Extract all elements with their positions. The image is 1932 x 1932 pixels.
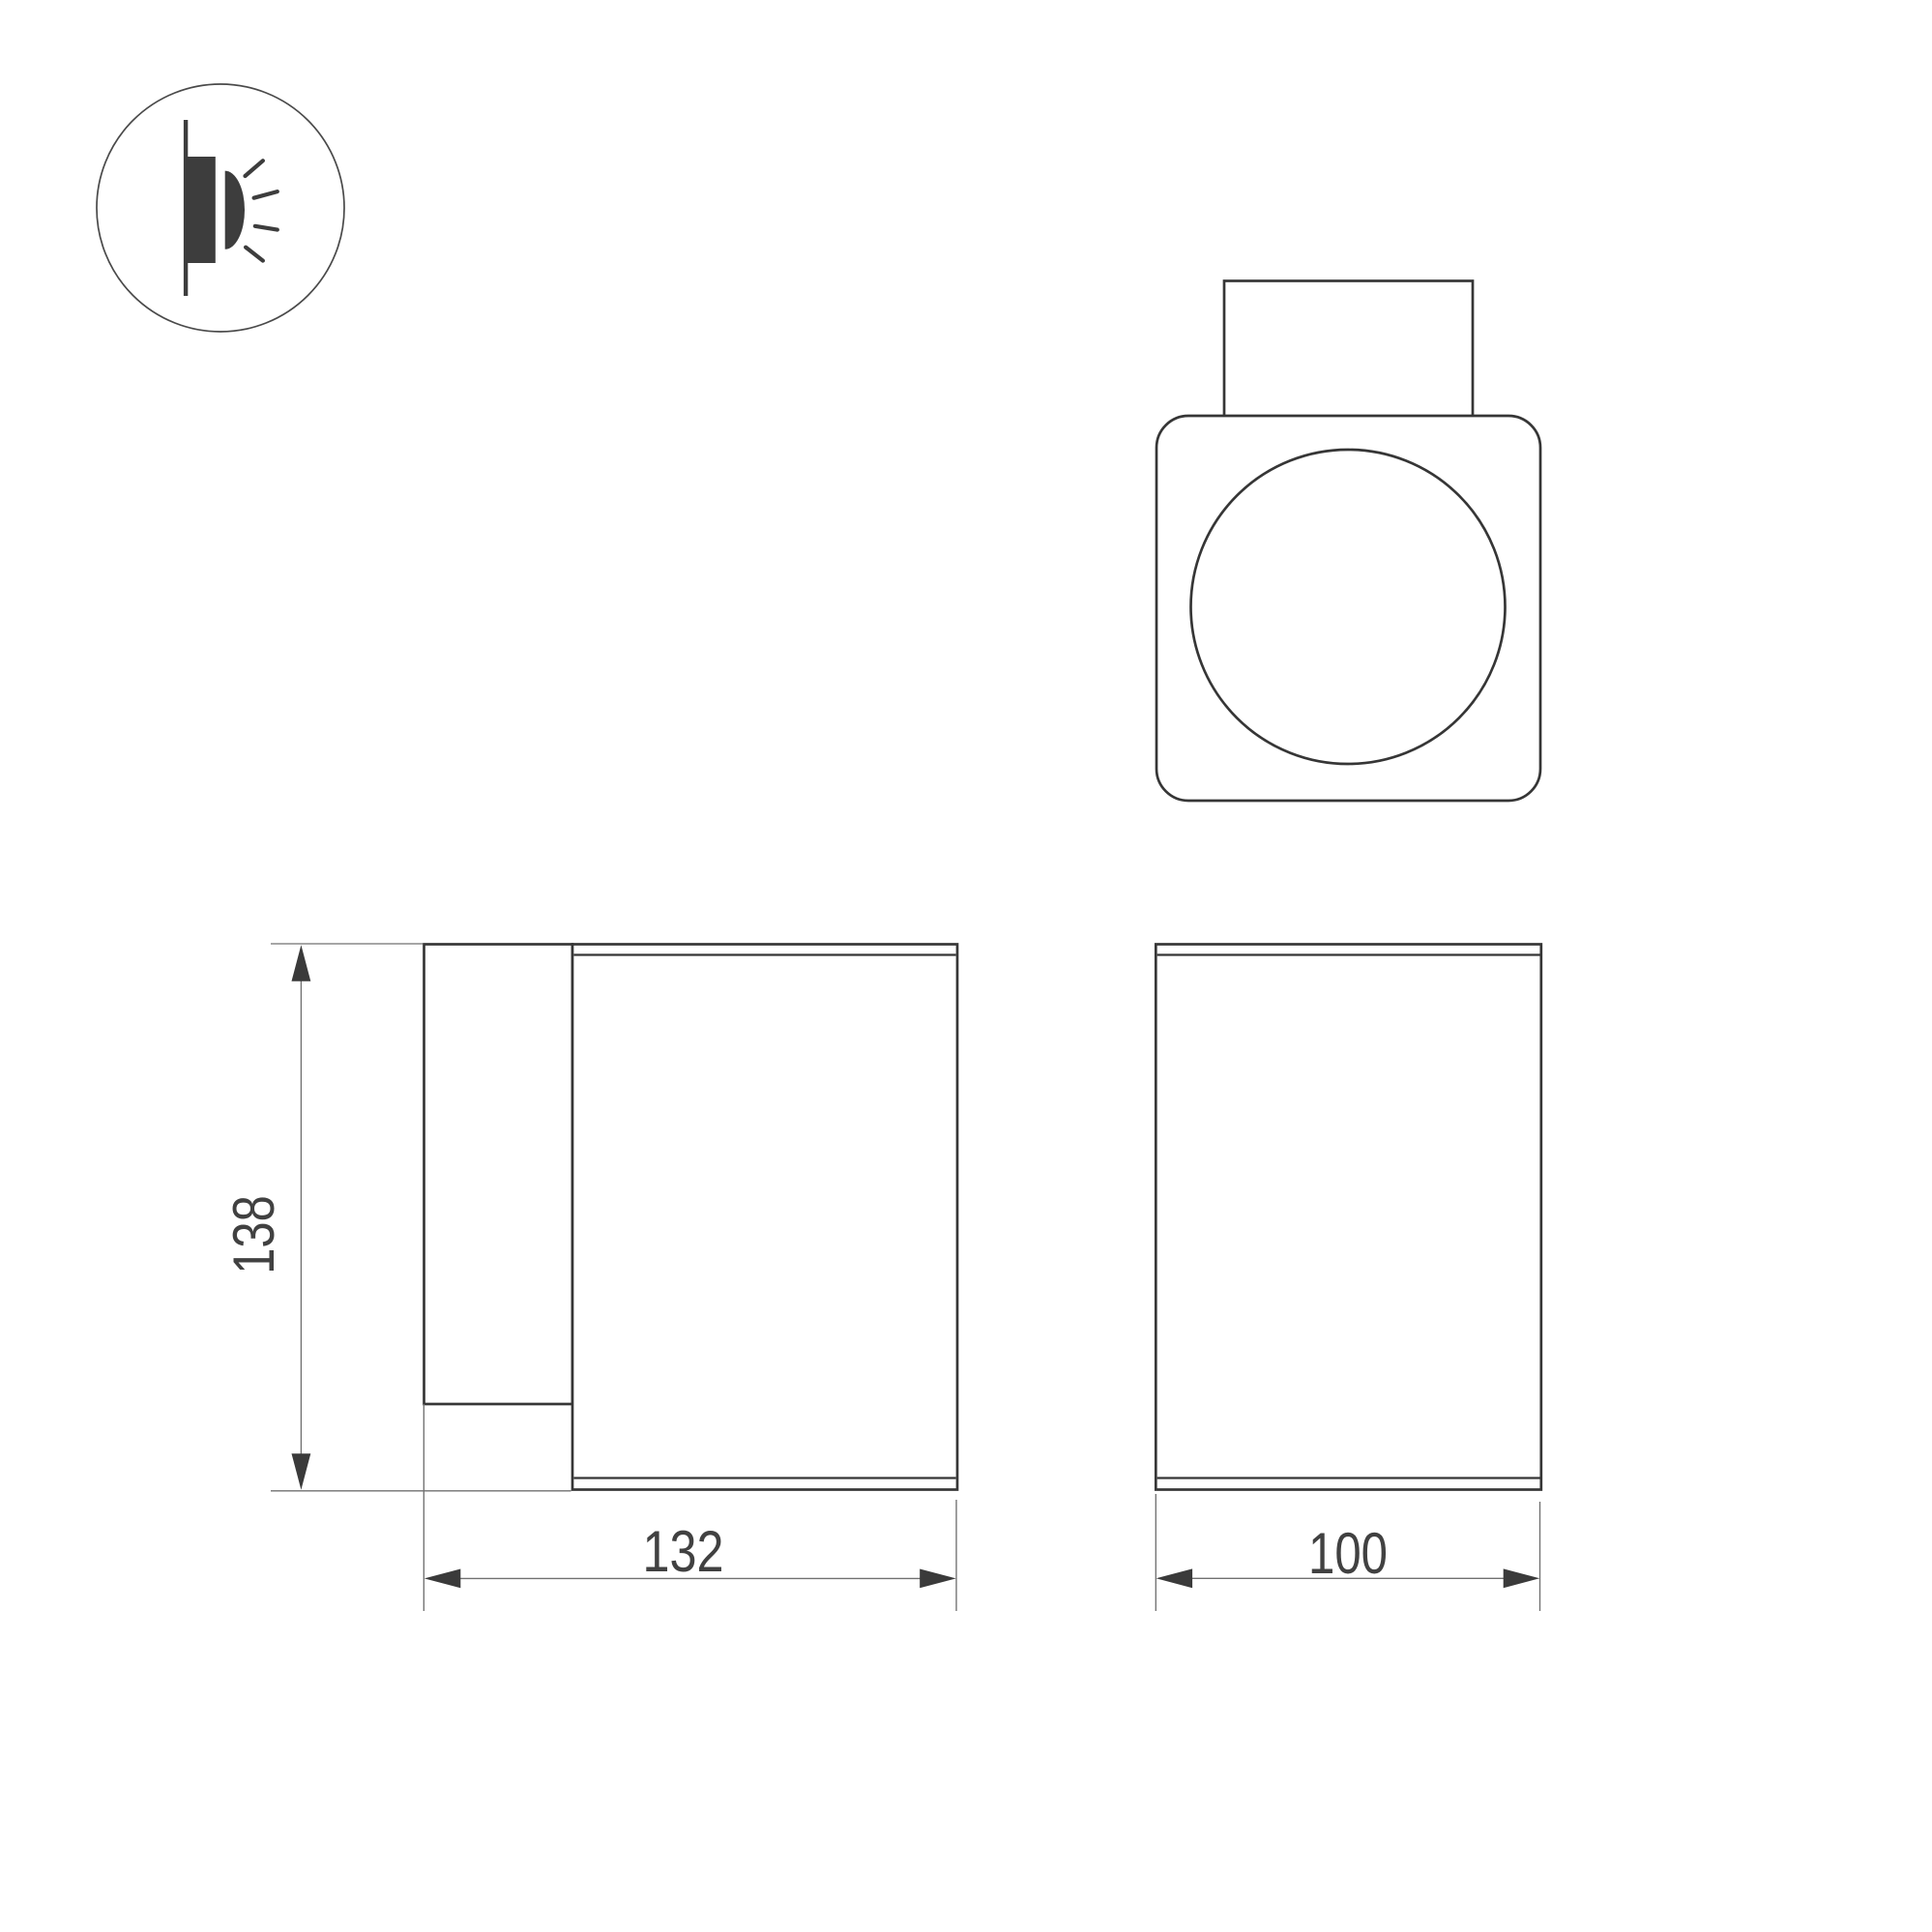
svg-text:132: 132 bbox=[643, 1519, 724, 1584]
svg-text:100: 100 bbox=[1308, 1521, 1388, 1586]
svg-text:138: 138 bbox=[221, 1195, 286, 1274]
